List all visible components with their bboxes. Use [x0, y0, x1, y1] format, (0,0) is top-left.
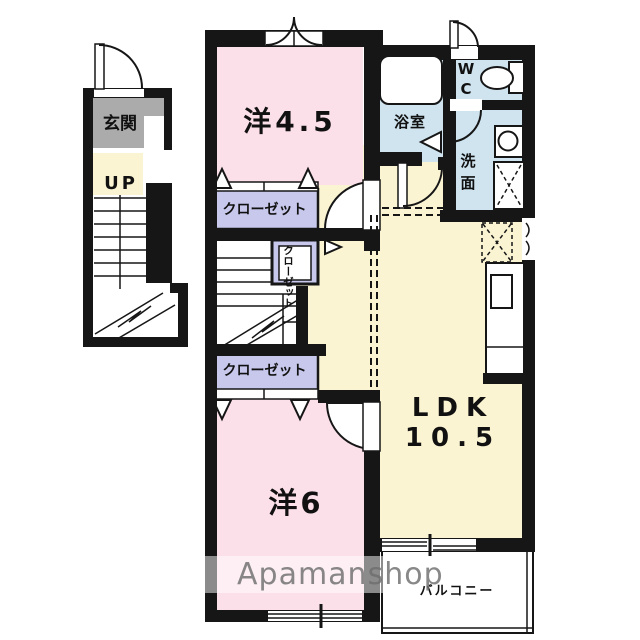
stair-top-step	[143, 148, 172, 183]
kitchen-counter	[486, 263, 524, 374]
label-wc-w: W	[455, 59, 477, 79]
shoe-cabinet	[144, 116, 164, 148]
watermark-text: Apamanshop	[237, 557, 444, 592]
label-closet-small: クローゼット	[281, 245, 294, 281]
casement-window	[265, 17, 323, 46]
floorplan-drawing	[0, 0, 640, 640]
label-ldk-size: 10.5	[385, 423, 521, 453]
label-wc-c: C	[455, 79, 477, 99]
floorplan-canvas: 玄関 UP 洋4.5 クローゼット クローゼット クローゼット 洋6 LDK10…	[0, 0, 640, 640]
bathtub-icon	[380, 56, 442, 104]
label-washroom: 洗面	[457, 150, 479, 194]
label-washroom-2: 面	[457, 172, 479, 194]
label-western-6: 洋6	[226, 480, 366, 522]
label-washroom-1: 洗	[457, 150, 479, 172]
wc-door	[450, 21, 478, 59]
label-closet-small-col2: ゼット	[282, 277, 294, 309]
label-western-4-5: 洋4.5	[215, 100, 365, 140]
label-bath: 浴室	[379, 111, 441, 132]
label-wc: WC	[455, 59, 477, 99]
sink-icon	[495, 126, 523, 157]
label-genkan: 玄関	[94, 109, 146, 134]
entrance-door	[94, 44, 144, 97]
label-closet-top: クローゼット	[211, 199, 318, 219]
label-ldk: LDK10.5	[385, 393, 521, 453]
label-closet-small-col1: クロー	[282, 245, 294, 277]
washing-machine-icon	[494, 162, 524, 209]
label-ldk-name: LDK	[385, 393, 521, 423]
entrance-structure	[83, 44, 188, 347]
label-up: UP	[99, 173, 143, 194]
label-closet-bottom: クローゼット	[211, 360, 318, 380]
side-window	[522, 218, 535, 260]
